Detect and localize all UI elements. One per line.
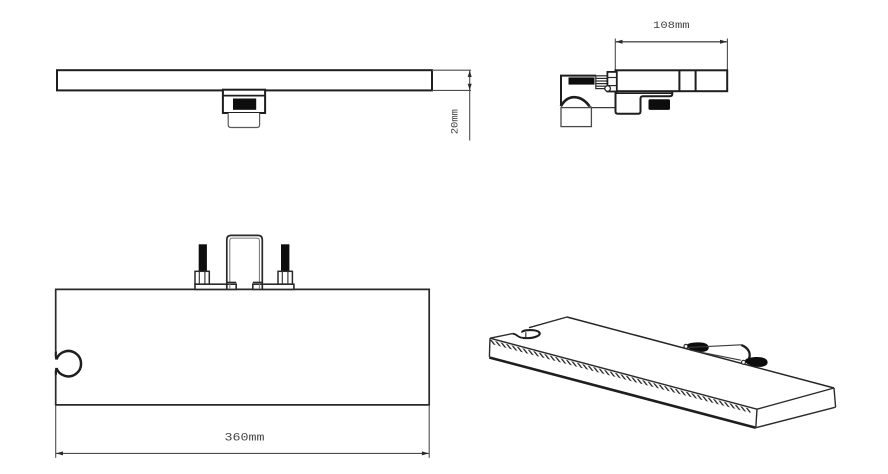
- svg-text:360mm: 360mm: [225, 433, 265, 445]
- svg-text:108mm: 108mm: [653, 20, 690, 32]
- svg-text:20mm: 20mm: [450, 109, 462, 134]
